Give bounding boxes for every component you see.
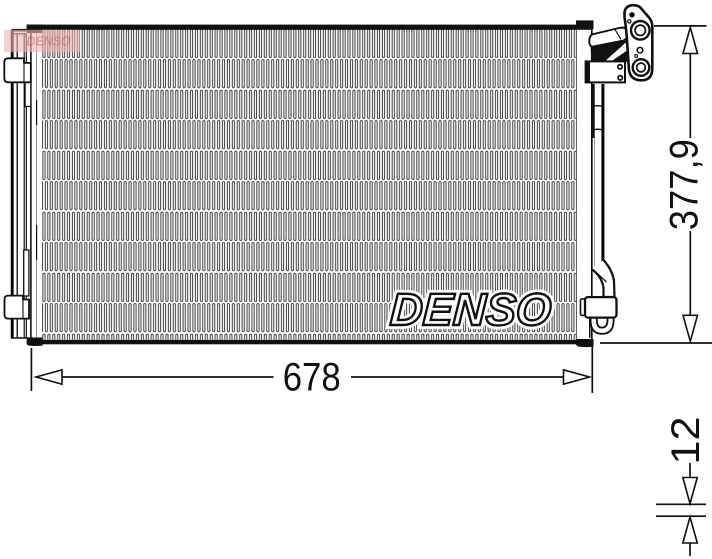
svg-text:678: 678 [283, 355, 341, 399]
svg-text:DENSO: DENSO [389, 284, 553, 335]
svg-text:DENSO: DENSO [27, 33, 72, 48]
svg-text:12: 12 [664, 417, 708, 465]
svg-text:377,9: 377,9 [662, 139, 706, 230]
